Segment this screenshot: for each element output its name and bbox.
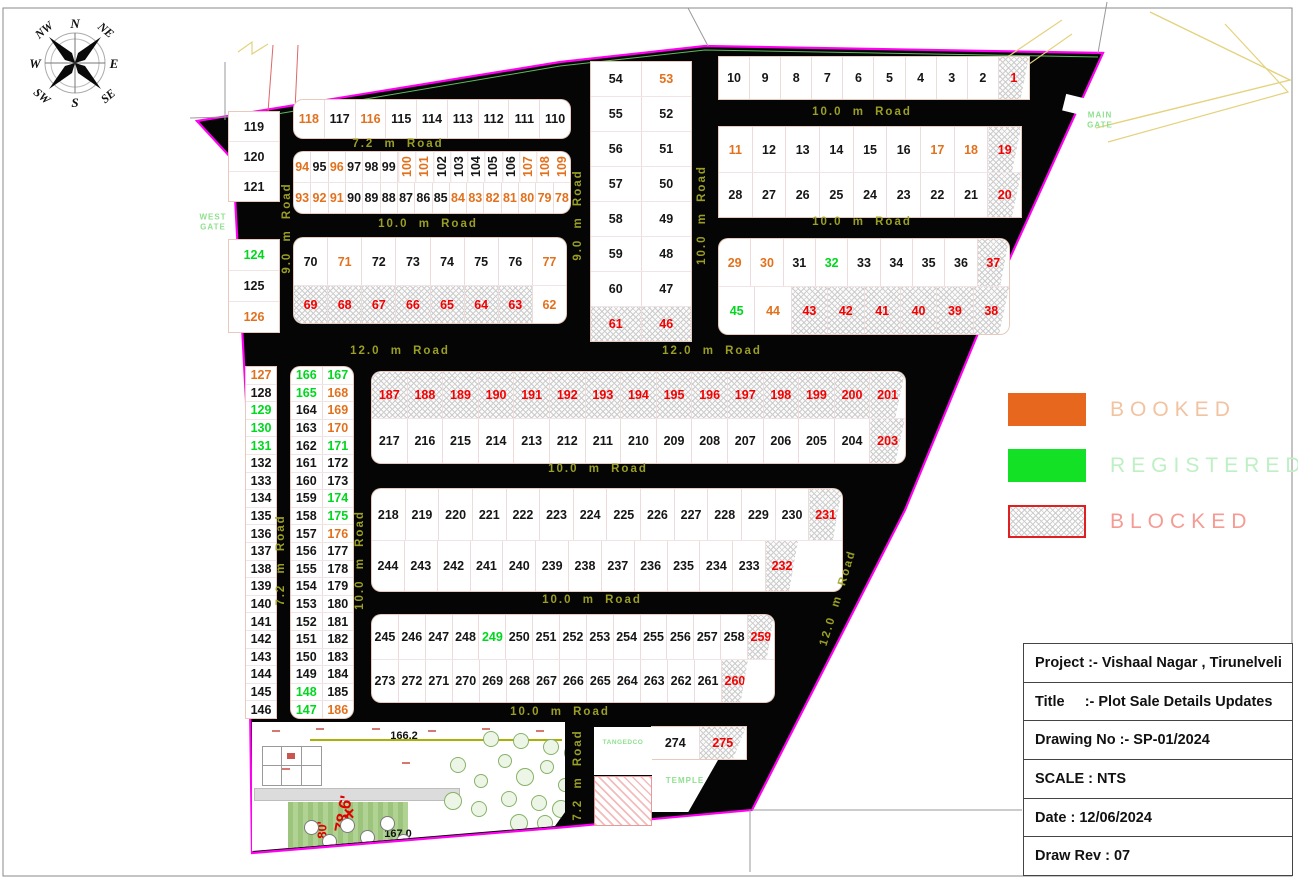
plot-row: 7071727374757677 (294, 238, 566, 286)
plot-205: 205 (799, 419, 835, 463)
plot-245: 245 (372, 615, 399, 659)
plot-row: 142 (246, 631, 276, 649)
plot-163: 163 (291, 420, 323, 437)
plot-98: 98 (363, 152, 380, 182)
plot-2: 2 (968, 57, 999, 99)
plot-224: 224 (574, 489, 608, 540)
col-166-186: 1661671651681641691631701621711611721601… (291, 367, 353, 718)
plot-8: 8 (781, 57, 812, 99)
plot-251: 251 (533, 615, 560, 659)
title-block-scale: SCALE : NTS (1024, 760, 1292, 799)
plot-49: 49 (642, 202, 692, 236)
plot-68: 68 (328, 286, 362, 323)
plot-103: 103 (450, 152, 467, 182)
plot-row: 139 (246, 578, 276, 596)
plot-114: 114 (417, 100, 448, 138)
plot-112: 112 (479, 100, 510, 138)
plot-111: 111 (509, 100, 540, 138)
plot-row: 6047 (591, 272, 691, 307)
plot-263: 263 (641, 660, 668, 702)
plot-23: 23 (887, 173, 921, 217)
col-119-121: 119120121 (229, 112, 279, 201)
plot-252: 252 (560, 615, 587, 659)
plot-244: 244 (372, 541, 405, 591)
plot-row: 157176 (291, 525, 353, 543)
plot-113: 113 (448, 100, 479, 138)
plot-18: 18 (955, 127, 989, 172)
plot-250: 250 (506, 615, 533, 659)
plot-119: 119 (229, 112, 279, 141)
plot-210: 210 (621, 419, 657, 463)
plot-220: 220 (439, 489, 473, 540)
park-annotation-mark (316, 728, 324, 730)
plot-row: 9495969798991001011021031041051061071081… (294, 152, 570, 183)
plot-182: 182 (323, 631, 354, 648)
plot-135: 135 (246, 508, 276, 525)
plot-62: 62 (533, 286, 566, 323)
plot-273: 273 (372, 660, 399, 702)
plot-row: 129 (246, 402, 276, 420)
plot-35: 35 (913, 239, 945, 286)
blocked-label: BLOCKED (1110, 510, 1252, 534)
plot-42: 42 (828, 287, 864, 334)
plot-254: 254 (614, 615, 641, 659)
park-annotation-mark (272, 730, 280, 732)
plot-28: 28 (719, 173, 753, 217)
park-tree (450, 757, 466, 773)
grid-245-260: 2452462472482492502512522532542552562572… (372, 615, 774, 702)
plot-184: 184 (323, 666, 354, 683)
plot-232: 232 (766, 541, 798, 591)
plot-152: 152 (291, 613, 323, 630)
grid-94-78: 9495969798991001011021031041051061071081… (294, 152, 570, 213)
plot-61: 61 (591, 307, 642, 341)
row-274-275: 274275 (652, 727, 746, 759)
grid-218-232: 2182192202212222232242252262272282292302… (372, 489, 842, 591)
plot-260: 260 (722, 660, 748, 702)
plot-55: 55 (591, 97, 642, 131)
road-label: 7.2 m Road (572, 729, 584, 820)
plot-row: 5552 (591, 97, 691, 132)
plot-139: 139 (246, 578, 276, 595)
plot-row: 119 (229, 112, 279, 142)
plot-7: 7 (812, 57, 843, 99)
plot-138: 138 (246, 561, 276, 578)
plot-229: 229 (742, 489, 776, 540)
plot-row: 244243242241240239238237236235234233232 (372, 541, 798, 591)
plot-44: 44 (755, 287, 791, 334)
plot-row: 160173 (291, 473, 353, 491)
plot-242: 242 (438, 541, 471, 591)
plot-row: 163170 (291, 420, 353, 438)
plot-77: 77 (533, 238, 566, 285)
plot-73: 73 (396, 238, 430, 285)
plot-146: 146 (246, 701, 276, 718)
park-annotation-mark (372, 728, 380, 730)
plot-63: 63 (499, 286, 533, 323)
plot-row: 156177 (291, 543, 353, 561)
plot-265: 265 (587, 660, 614, 702)
grid-11-20: 111213141516171819282726252423222120 (719, 127, 1021, 217)
plot-66: 66 (396, 286, 430, 323)
plot-261: 261 (695, 660, 722, 702)
booked-swatch (1008, 393, 1086, 426)
plot-129: 129 (246, 402, 276, 419)
plot-158: 158 (291, 508, 323, 525)
plot-12: 12 (753, 127, 787, 172)
plot-132: 132 (246, 455, 276, 472)
plot-row: 5651 (591, 132, 691, 167)
plot-row: 2172162152142132122112102092082072062052… (372, 419, 905, 463)
road-label: 10.0 m Road (696, 165, 708, 265)
plot-row: 127 (246, 367, 276, 385)
plot-72: 72 (362, 238, 396, 285)
plot-row: 2732722712702692682672662652642632622612… (372, 660, 748, 702)
plot-40: 40 (901, 287, 937, 334)
plot-row: 165168 (291, 385, 353, 403)
plot-50: 50 (642, 167, 692, 201)
plot-185: 185 (323, 684, 354, 701)
plot-row: 135 (246, 508, 276, 526)
plot-row: 282726252423222120 (719, 173, 1021, 217)
plot-238: 238 (569, 541, 602, 591)
site-plan-sheet: N NE E SE S SW W NW 11912012111811711611… (0, 0, 1298, 882)
plot-174: 174 (323, 490, 354, 507)
plot-95: 95 (311, 152, 328, 182)
park-annotation-mark (282, 768, 290, 770)
plot-109: 109 (554, 152, 570, 182)
plot-267: 267 (534, 660, 561, 702)
plot-164: 164 (291, 402, 323, 419)
plot-16: 16 (887, 127, 921, 172)
plot-159: 159 (291, 490, 323, 507)
plot-27: 27 (753, 173, 787, 217)
plot-row: 148185 (291, 684, 353, 702)
plot-110: 110 (540, 100, 570, 138)
plot-43: 43 (792, 287, 828, 334)
plot-83: 83 (467, 183, 484, 213)
plot-166: 166 (291, 367, 323, 384)
park-tree (474, 774, 488, 788)
title-block: Project :- Vishaal Nagar , Tirunelveli T… (1023, 643, 1293, 876)
plot-53: 53 (642, 62, 692, 96)
plot-170: 170 (323, 420, 354, 437)
plot-201: 201 (870, 372, 905, 418)
plot-272: 272 (399, 660, 426, 702)
plot-130: 130 (246, 420, 276, 437)
plot-188: 188 (408, 372, 444, 418)
plot-258: 258 (721, 615, 748, 659)
plot-142: 142 (246, 631, 276, 648)
plot-181: 181 (323, 613, 354, 630)
park-tree (540, 760, 554, 774)
plot-180: 180 (323, 596, 354, 613)
road-label: 10.0 m Road (542, 594, 642, 606)
plot-row: 136 (246, 525, 276, 543)
plot-row: 126 (229, 302, 279, 332)
road-label: 10.0 m Road (812, 216, 912, 228)
plot-121: 121 (229, 172, 279, 201)
park-building (262, 746, 322, 786)
plot-228: 228 (708, 489, 742, 540)
temple-label: TEMPLE (666, 776, 704, 785)
plot-124: 124 (229, 240, 279, 270)
plot-255: 255 (641, 615, 668, 659)
road-label: 12.0 m Road (662, 345, 762, 357)
plot-157: 157 (291, 525, 323, 542)
road-label: 9.0 m Road (281, 182, 293, 273)
plot-row: 5948 (591, 237, 691, 272)
plot-row: 166167 (291, 367, 353, 385)
plot-39: 39 (937, 287, 973, 334)
plot-240: 240 (503, 541, 536, 591)
plot-row: 4544434241403938 (719, 287, 1009, 334)
plot-93: 93 (294, 183, 311, 213)
plot-59: 59 (591, 237, 642, 271)
tangedco-hatch-area (594, 776, 652, 826)
plot-165: 165 (291, 385, 323, 402)
main-gate-label: MAIN GATE (1087, 110, 1113, 129)
plot-206: 206 (764, 419, 800, 463)
plot-219: 219 (406, 489, 440, 540)
park-level-top: 166.2 (390, 730, 418, 742)
plot-57: 57 (591, 167, 642, 201)
park-annotation-mark (428, 730, 436, 732)
plot-row: 128 (246, 385, 276, 403)
plot-58: 58 (591, 202, 642, 236)
plot-row: 150183 (291, 649, 353, 667)
road-label: 12.0 m Road (350, 345, 450, 357)
plot-row: 130 (246, 420, 276, 438)
plot-187: 187 (372, 372, 408, 418)
plot-6: 6 (843, 57, 874, 99)
plot-169: 169 (323, 402, 354, 419)
plot-151: 151 (291, 631, 323, 648)
plot-262: 262 (668, 660, 695, 702)
plot-row: 152181 (291, 613, 353, 631)
plot-34: 34 (881, 239, 913, 286)
legend-item-registered: REGISTERED (1008, 449, 1298, 482)
plot-227: 227 (675, 489, 709, 540)
plot-row: 138 (246, 561, 276, 579)
row-118-110: 118117116115114113112111110 (294, 100, 570, 138)
plot-row: 134 (246, 490, 276, 508)
legend-item-booked: BOOKED (1008, 393, 1236, 426)
plot-208: 208 (692, 419, 728, 463)
plot-75: 75 (465, 238, 499, 285)
plot-200: 200 (835, 372, 871, 418)
plot-81: 81 (502, 183, 519, 213)
park-tree (513, 733, 529, 749)
plot-212: 212 (550, 419, 586, 463)
plot-67: 67 (362, 286, 396, 323)
plot-96: 96 (329, 152, 346, 182)
plot-127: 127 (246, 367, 276, 384)
plot-160: 160 (291, 473, 323, 490)
plot-52: 52 (642, 97, 692, 131)
tangedco-area: TANGEDCO (594, 727, 652, 775)
plot-178: 178 (323, 561, 354, 578)
legend-item-blocked: BLOCKED (1008, 505, 1252, 538)
plot-106: 106 (502, 152, 519, 182)
plot-88: 88 (381, 183, 398, 213)
plot-225: 225 (607, 489, 641, 540)
plot-115: 115 (386, 100, 417, 138)
plot-29: 29 (719, 239, 751, 286)
plot-row: 125 (229, 271, 279, 302)
plot-218: 218 (372, 489, 406, 540)
plot-190: 190 (479, 372, 515, 418)
plot-213: 213 (514, 419, 550, 463)
tangedco-label: TANGEDCO (603, 739, 644, 746)
plot-141: 141 (246, 613, 276, 630)
plot-46: 46 (642, 307, 692, 341)
plot-76: 76 (499, 238, 533, 285)
plot-row: 1871881891901911921931941951961971981992… (372, 372, 905, 419)
plot-134: 134 (246, 490, 276, 507)
plot-183: 183 (323, 649, 354, 666)
road-label: 10.0 m Road (548, 463, 648, 475)
plot-row: 155178 (291, 561, 353, 579)
plot-80: 80 (519, 183, 536, 213)
plot-214: 214 (479, 419, 515, 463)
plot-17: 17 (921, 127, 955, 172)
plot-186: 186 (323, 701, 354, 718)
plot-row: 5849 (591, 202, 691, 237)
grid-187-203: 1871881891901911921931941951961971981992… (372, 372, 905, 463)
plot-101: 101 (415, 152, 432, 182)
plot-221: 221 (473, 489, 507, 540)
plot-row: 153180 (291, 596, 353, 614)
plot-140: 140 (246, 596, 276, 613)
plot-168: 168 (323, 385, 354, 402)
plot-248: 248 (453, 615, 480, 659)
plot-65: 65 (431, 286, 465, 323)
plot-128: 128 (246, 385, 276, 402)
park-tree (444, 792, 462, 810)
plot-223: 223 (540, 489, 574, 540)
plot-row: 10987654321 (719, 57, 1029, 99)
plot-108: 108 (536, 152, 553, 182)
plot-211: 211 (586, 419, 622, 463)
plot-270: 270 (453, 660, 480, 702)
plot-row: 121 (229, 172, 279, 201)
plot-89: 89 (363, 183, 380, 213)
park-tree (516, 768, 534, 786)
plot-237: 237 (602, 541, 635, 591)
plot-176: 176 (323, 525, 354, 542)
plot-row: 293031323334353637 (719, 239, 1009, 287)
plot-22: 22 (921, 173, 955, 217)
park-tree (471, 801, 487, 817)
plot-193: 193 (586, 372, 622, 418)
plot-153: 153 (291, 596, 323, 613)
road-label: 10.0 m Road (510, 706, 610, 718)
plot-236: 236 (635, 541, 668, 591)
plot-107: 107 (519, 152, 536, 182)
plot-175: 175 (323, 508, 354, 525)
plot-195: 195 (657, 372, 693, 418)
plot-19: 19 (988, 127, 1021, 172)
road-label: 7.2 m Road (352, 138, 443, 150)
plot-198: 198 (764, 372, 800, 418)
park-lawn-tree (304, 820, 319, 835)
plot-197: 197 (728, 372, 764, 418)
plot-199: 199 (799, 372, 835, 418)
park-tree (531, 795, 547, 811)
plot-269: 269 (480, 660, 507, 702)
plot-207: 207 (728, 419, 764, 463)
plot-148: 148 (291, 684, 323, 701)
plot-48: 48 (642, 237, 692, 271)
plot-215: 215 (443, 419, 479, 463)
plot-9: 9 (750, 57, 781, 99)
plot-64: 64 (465, 286, 499, 323)
plot-36: 36 (945, 239, 977, 286)
plot-204: 204 (835, 419, 871, 463)
park-annotation-mark (402, 762, 410, 764)
plot-259: 259 (748, 615, 774, 659)
plot-32: 32 (816, 239, 848, 286)
plot-234: 234 (700, 541, 733, 591)
plot-154: 154 (291, 578, 323, 595)
plot-82: 82 (484, 183, 501, 213)
plot-192: 192 (550, 372, 586, 418)
plot-24: 24 (854, 173, 888, 217)
road-label: 7.2 m Road (275, 514, 287, 605)
plot-row: 5453 (591, 62, 691, 97)
park-tree (498, 754, 512, 768)
title-block-rev: Draw Rev : 07 (1024, 837, 1292, 875)
plot-102: 102 (433, 152, 450, 182)
park-annotation-mark (536, 730, 544, 732)
title-block-drawing-no: Drawing No :- SP-01/2024 (1024, 721, 1292, 760)
plot-row: 147186 (291, 701, 353, 718)
plot-13: 13 (786, 127, 820, 172)
plot-216: 216 (408, 419, 444, 463)
plot-38: 38 (974, 287, 1009, 334)
road-label: 10.0 m Road (378, 218, 478, 230)
plot-143: 143 (246, 649, 276, 666)
plot-row: 158175 (291, 508, 353, 526)
plot-264: 264 (614, 660, 641, 702)
plot-144: 144 (246, 666, 276, 683)
plot-247: 247 (426, 615, 453, 659)
plot-268: 268 (507, 660, 534, 702)
plot-125: 125 (229, 271, 279, 301)
plot-147: 147 (291, 701, 323, 718)
plot-47: 47 (642, 272, 692, 306)
plot-84: 84 (450, 183, 467, 213)
plot-155: 155 (291, 561, 323, 578)
plot-253: 253 (587, 615, 614, 659)
plot-231: 231 (809, 489, 842, 540)
row-10-1: 10987654321 (719, 57, 1029, 99)
plot-74: 74 (431, 238, 465, 285)
plot-136: 136 (246, 525, 276, 542)
plot-row: 143 (246, 649, 276, 667)
grid-70-62: 70717273747576776968676665646362 (294, 238, 566, 323)
plot-256: 256 (667, 615, 694, 659)
plot-31: 31 (784, 239, 816, 286)
plot-41: 41 (865, 287, 901, 334)
plot-70: 70 (294, 238, 328, 285)
title-block-title: Title :- Plot Sale Details Updates (1024, 683, 1292, 722)
plot-99: 99 (381, 152, 398, 182)
plot-5: 5 (874, 57, 905, 99)
plot-230: 230 (776, 489, 810, 540)
plot-257: 257 (694, 615, 721, 659)
